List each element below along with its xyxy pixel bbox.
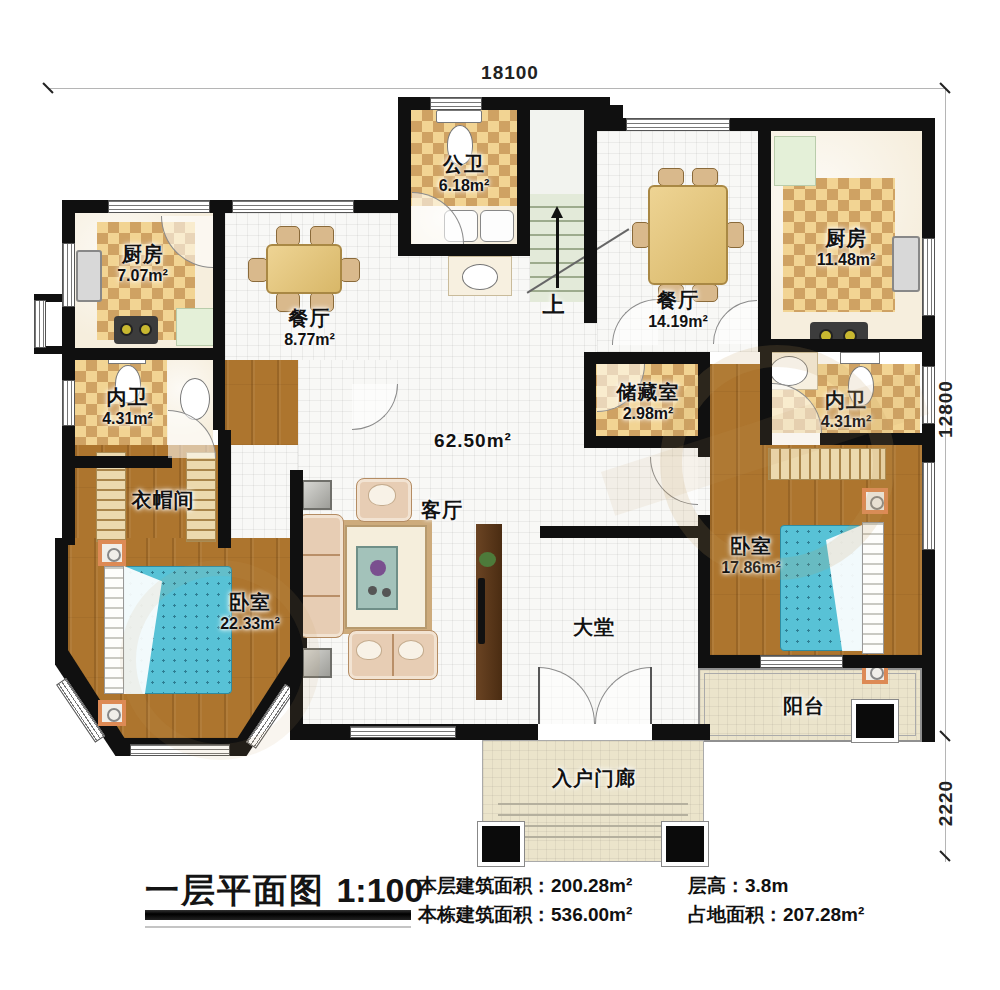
room-label-storage: 储藏室 2.98m² (588, 380, 708, 423)
floor-plan: 18100 12800 2220 (0, 0, 1000, 990)
burner (139, 323, 152, 336)
sliding-door (760, 655, 843, 668)
chair (658, 168, 684, 186)
room-label-kitchen-left: 厨房 7.07m² (90, 242, 195, 285)
wall-segment (213, 213, 225, 430)
room-label-living: 客厅 (398, 498, 486, 522)
room-label-hall: 大堂 (550, 615, 638, 639)
sofa-pillow (398, 640, 424, 660)
bed-headboard (862, 522, 884, 654)
stove-icon (114, 316, 158, 344)
window (108, 200, 210, 213)
room-label-bath-left: 内卫 4.31m² (75, 385, 180, 428)
wall-segment (540, 526, 710, 538)
table-decor (382, 588, 391, 597)
hall-inlet-floor (231, 430, 298, 548)
room-label-dining-left: 餐厅 8.77m² (262, 306, 357, 349)
tv-icon (478, 578, 485, 644)
room-label-bedroom-left: 卧室 22.33m² (195, 590, 305, 633)
burner (120, 323, 133, 336)
end-table (302, 648, 332, 678)
door-leaf (538, 667, 540, 724)
basin-icon (480, 210, 514, 242)
fridge-icon (774, 136, 816, 186)
wall-segment (584, 352, 710, 364)
porch-steps (498, 794, 688, 838)
room-label-bedroom-right: 卧室 17.86m² (695, 534, 807, 577)
wall-segment (398, 244, 530, 256)
room-label-balcony: 阳台 (760, 694, 848, 718)
room-label-bath-right: 内卫 4.31m² (790, 388, 902, 431)
sofa-pillow (368, 484, 396, 506)
stairs-up-arrow (551, 206, 563, 218)
dimension-line-top (48, 88, 945, 89)
wardrobe (768, 448, 886, 480)
window (34, 300, 46, 348)
chair (276, 226, 300, 246)
stat-footprint-area: 占地面积：207.28m² (688, 902, 864, 928)
chair (692, 168, 718, 186)
kitchen-counter (176, 308, 214, 346)
wall-segment (922, 118, 935, 742)
toilet-tank (436, 110, 482, 123)
corridor-left-floor (225, 360, 298, 445)
dimension-label-top: 18100 (460, 62, 560, 84)
dimension-label-porch: 2220 (935, 773, 957, 833)
chair (248, 258, 268, 282)
window (922, 366, 935, 424)
wall-segment (218, 430, 231, 548)
table-decor (370, 560, 386, 576)
stairs-up-label: 上 (534, 292, 574, 318)
room-label-porch: 入户门廊 (538, 766, 650, 790)
dimension-label-right: 12800 (935, 373, 957, 445)
coffee-table (356, 546, 398, 610)
stairs-up-arrow-line (556, 218, 559, 288)
window (232, 200, 354, 213)
door-leaf (650, 667, 652, 724)
wall-segment (843, 655, 935, 668)
wall-segment (62, 348, 225, 360)
hall-area-label: 62.50m² (418, 430, 528, 453)
wall-segment (584, 436, 710, 448)
stat-total-area: 本栋建筑面积：536.00m² (418, 902, 632, 928)
stat-floor-area: 本层建筑面积：200.28m² (418, 873, 632, 899)
nightstand (98, 700, 126, 726)
nightstand (98, 540, 126, 566)
room-label-cloakroom: 衣帽间 (108, 488, 218, 512)
sink-icon (462, 264, 498, 290)
wall-segment (584, 97, 597, 323)
end-table (302, 480, 332, 510)
wall-segment (758, 339, 935, 352)
wall-segment (758, 118, 771, 352)
bay-window-bottom (130, 744, 230, 756)
wall-segment (62, 456, 172, 468)
window (430, 97, 482, 110)
nightstand (862, 488, 888, 514)
window (922, 238, 935, 316)
window (922, 462, 935, 550)
staircase (530, 110, 584, 302)
room-label-dining-right: 餐厅 14.19m² (622, 288, 734, 331)
wall-segment (820, 433, 922, 445)
room-label-kitchen-right: 厨房 11.48m² (790, 226, 902, 269)
wall-segment (698, 655, 760, 668)
room-label-public-bath: 公卫 6.18m² (410, 152, 518, 195)
wall-segment (760, 352, 772, 445)
chair (726, 222, 744, 248)
table-decor (368, 586, 377, 595)
page-title: 一层平面图 1:100 (145, 868, 423, 914)
wall-segment (760, 433, 772, 445)
balcony-column (852, 700, 898, 742)
title-block: 一层平面图 1:100 本层建筑面积：200.28m² 本栋建筑面积：536.0… (0, 860, 1000, 940)
wall-segment (517, 97, 530, 256)
window (626, 118, 730, 131)
dining-table-right (648, 185, 728, 285)
window (62, 380, 75, 426)
sofa-pillow (356, 640, 382, 660)
chair (310, 226, 334, 246)
corridor-right-floor (710, 364, 760, 452)
window (62, 243, 75, 307)
bed-headboard (104, 566, 124, 694)
title-rule-thick (145, 910, 411, 920)
chair (340, 258, 360, 282)
title-rule-thin (145, 926, 411, 928)
window (350, 726, 456, 738)
dimension-line-right (945, 88, 946, 862)
toilet-tank (840, 352, 880, 364)
plant-icon (479, 552, 496, 567)
wall-segment (652, 724, 710, 740)
dining-table-left (266, 244, 342, 294)
stat-story-height: 层高：3.8m (688, 873, 788, 899)
sink-icon (770, 356, 808, 386)
